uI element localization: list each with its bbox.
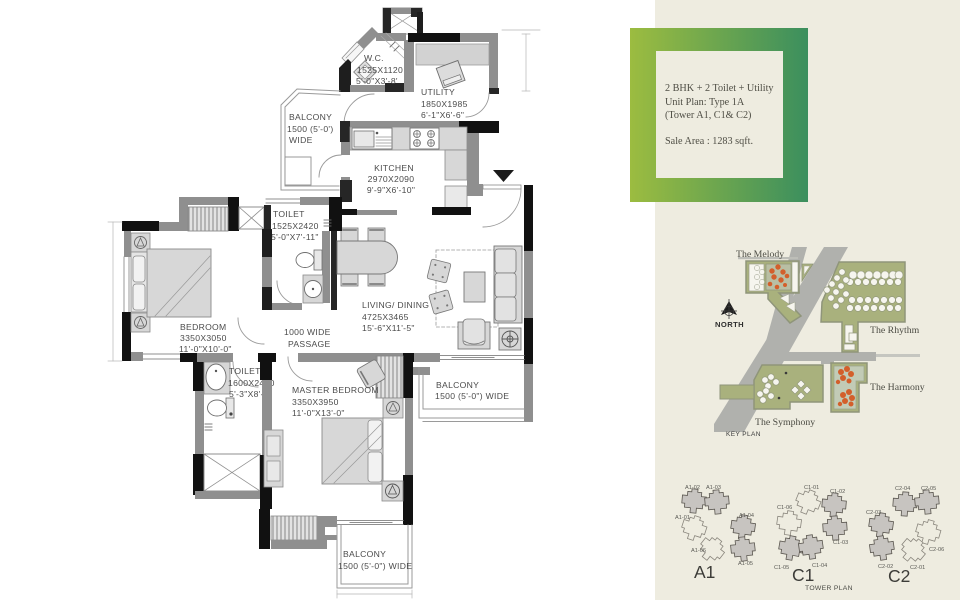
- svg-text:C1-01: C1-01: [804, 485, 819, 491]
- svg-text:KITCHEN: KITCHEN: [374, 163, 414, 173]
- svg-text:UTILITY: UTILITY: [421, 87, 455, 97]
- svg-text:1500 (5'-0") WIDE: 1500 (5'-0") WIDE: [435, 391, 509, 401]
- svg-text:2 BHK + 2 Toilet + Utility: 2 BHK + 2 Toilet + Utility: [665, 83, 774, 94]
- svg-text:C2-04: C2-04: [895, 486, 910, 492]
- svg-text:1525X1120: 1525X1120: [357, 65, 403, 75]
- svg-text:11'-0"X10'-0": 11'-0"X10'-0": [179, 344, 232, 354]
- svg-text:15'-6"X11'-5": 15'-6"X11'-5": [362, 323, 415, 333]
- svg-text:1850X1985: 1850X1985: [421, 99, 468, 109]
- svg-text:KEY PLAN: KEY PLAN: [726, 431, 761, 438]
- svg-text:BEDROOM: BEDROOM: [180, 322, 227, 332]
- svg-text:BALCONY: BALCONY: [436, 380, 479, 390]
- svg-text:The Rhythm: The Rhythm: [870, 325, 920, 336]
- svg-text:Sale Area : 1283 sqft.: Sale Area : 1283 sqft.: [665, 136, 753, 147]
- svg-text:WIDE: WIDE: [289, 135, 313, 145]
- svg-text:3350X3050: 3350X3050: [180, 333, 227, 343]
- svg-text:A1-06: A1-06: [691, 548, 706, 554]
- svg-text:C2: C2: [888, 566, 910, 586]
- svg-text:TOWER PLAN: TOWER PLAN: [805, 585, 853, 592]
- svg-text:11'-0"X13'-0": 11'-0"X13'-0": [292, 408, 345, 418]
- svg-text:1000 WIDE: 1000 WIDE: [284, 327, 331, 337]
- svg-text:TOILET: TOILET: [273, 209, 305, 219]
- svg-text:TOILET: TOILET: [229, 366, 261, 376]
- svg-text:A1-02: A1-02: [685, 485, 700, 491]
- svg-text:A1-01: A1-01: [675, 515, 690, 521]
- svg-text:NORTH: NORTH: [715, 320, 744, 329]
- svg-text:4725X3465: 4725X3465: [362, 312, 409, 322]
- svg-text:A1-05: A1-05: [738, 561, 753, 567]
- svg-text:2970X2090: 2970X2090: [368, 174, 415, 184]
- svg-text:1500 (5'-0") WIDE: 1500 (5'-0") WIDE: [338, 561, 412, 571]
- svg-text:9'-9"X6'-10": 9'-9"X6'-10": [367, 185, 415, 195]
- svg-text:C1-02: C1-02: [830, 489, 845, 495]
- svg-text:A1-03: A1-03: [706, 485, 721, 491]
- svg-text:C2-01: C2-01: [910, 565, 925, 571]
- svg-text:MASTER BEDROOM: MASTER BEDROOM: [292, 385, 379, 395]
- svg-text:BALCONY: BALCONY: [343, 549, 386, 559]
- svg-text:Unit Plan: Type 1A: Unit Plan: Type 1A: [665, 97, 745, 108]
- svg-text:6'-1"X6'-6": 6'-1"X6'-6": [421, 110, 464, 120]
- svg-text:BALCONY: BALCONY: [289, 112, 332, 122]
- svg-text:PASSAGE: PASSAGE: [288, 339, 331, 349]
- svg-text:1525X2420: 1525X2420: [272, 221, 319, 231]
- svg-text:A1-04: A1-04: [739, 513, 754, 519]
- svg-text:C1-05: C1-05: [774, 565, 789, 571]
- svg-text:C1-03: C1-03: [833, 540, 848, 546]
- svg-text:C1-06: C1-06: [777, 505, 792, 511]
- svg-text:LIVING/ DINING: LIVING/ DINING: [362, 300, 429, 310]
- svg-text:C2-05: C2-05: [921, 486, 936, 492]
- svg-text:C2-03: C2-03: [866, 510, 881, 516]
- svg-text:C1: C1: [792, 565, 814, 585]
- svg-text:The Symphony: The Symphony: [755, 417, 815, 428]
- svg-text:A1: A1: [694, 562, 715, 582]
- svg-text:5'-0"X3'-8': 5'-0"X3'-8': [356, 76, 398, 86]
- svg-text:1500 (5'-0'): 1500 (5'-0'): [287, 124, 334, 134]
- svg-text:W.C.: W.C.: [364, 53, 384, 63]
- svg-text:5'-0"X7'-11": 5'-0"X7'-11": [271, 232, 319, 242]
- svg-text:C2-06: C2-06: [929, 547, 944, 553]
- svg-text:(Tower A1, C1& C2): (Tower A1, C1& C2): [665, 110, 751, 121]
- svg-text:3350X3950: 3350X3950: [292, 397, 339, 407]
- svg-text:The Melody: The Melody: [736, 249, 784, 260]
- svg-text:The Harmony: The Harmony: [870, 382, 925, 393]
